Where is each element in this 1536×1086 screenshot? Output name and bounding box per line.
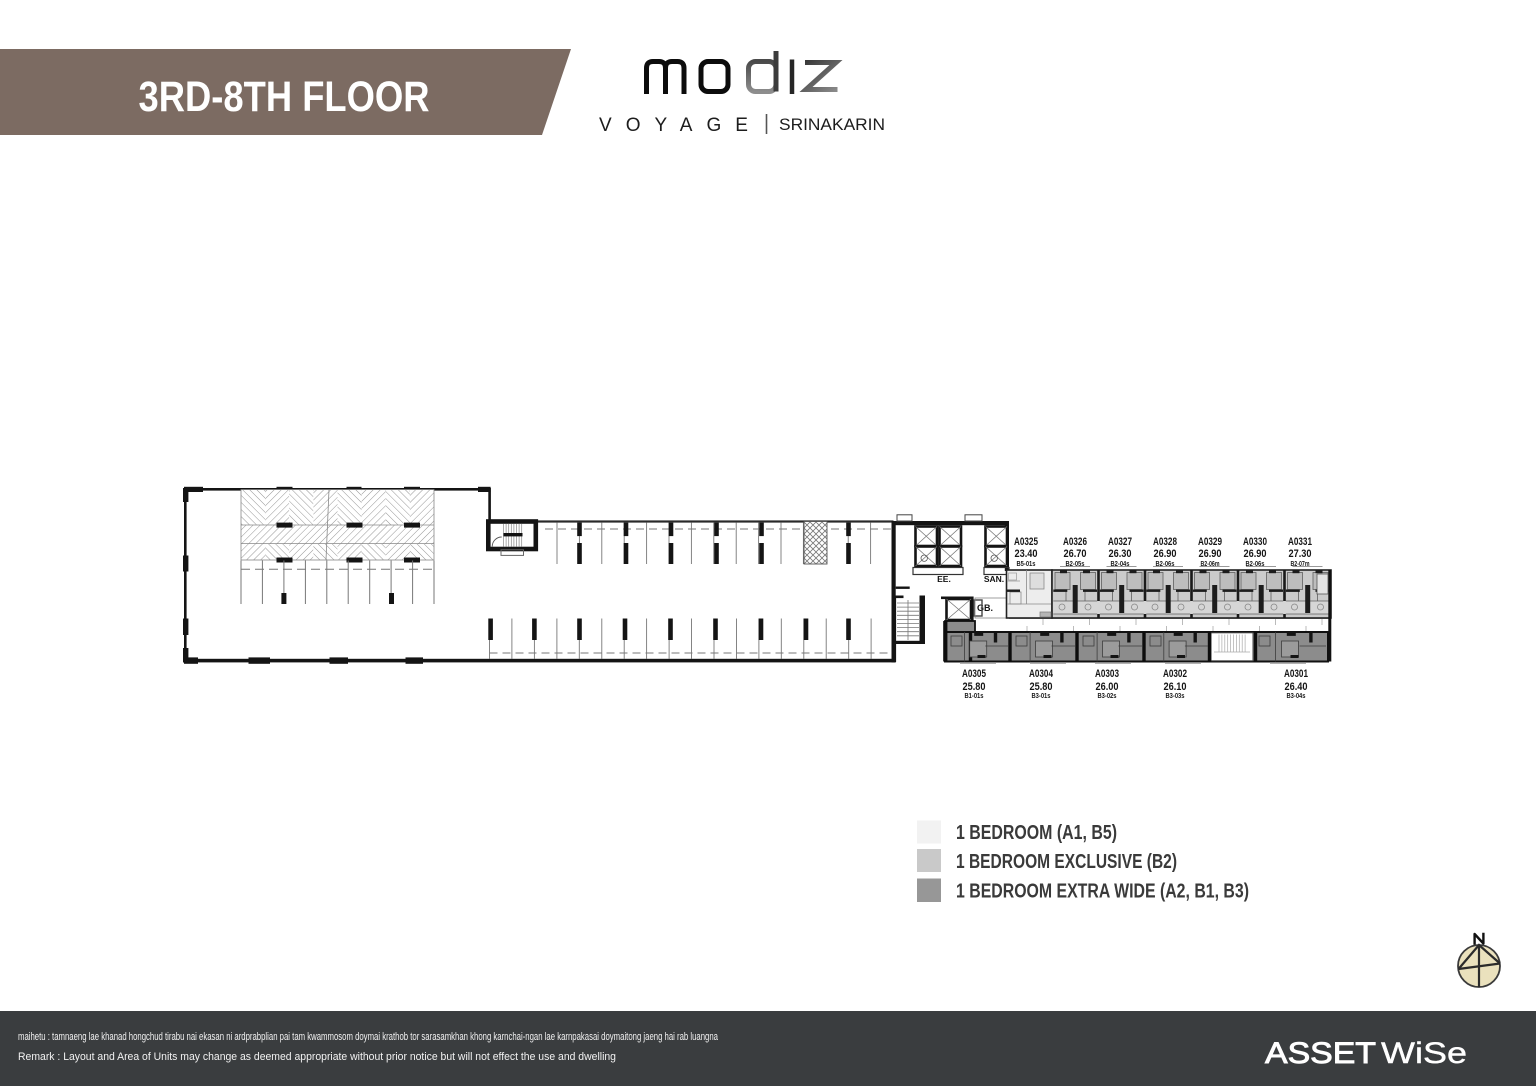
svg-text:SAN.: SAN. xyxy=(984,574,1004,584)
svg-text:A0301: A0301 xyxy=(1284,668,1308,680)
svg-text:B2-05s: B2-05s xyxy=(1066,561,1085,568)
svg-text:A0328: A0328 xyxy=(1153,536,1177,548)
svg-text:B3-02s: B3-02s xyxy=(1098,693,1117,700)
svg-text:1 BEDROOM (A1, B5): 1 BEDROOM (A1, B5) xyxy=(956,821,1117,844)
svg-text:B3-03s: B3-03s xyxy=(1166,693,1185,700)
svg-text:26.10: 26.10 xyxy=(1164,681,1187,693)
svg-text:A0326: A0326 xyxy=(1063,536,1087,548)
svg-text:VOYAGE: VOYAGE xyxy=(599,115,762,136)
svg-text:26.90: 26.90 xyxy=(1244,548,1267,560)
svg-text:A0329: A0329 xyxy=(1198,536,1222,548)
svg-text:26.40: 26.40 xyxy=(1285,681,1308,693)
svg-text:A0302: A0302 xyxy=(1163,668,1187,680)
svg-text:ASSET: ASSET xyxy=(1265,1037,1376,1070)
svg-text:25.80: 25.80 xyxy=(963,681,986,693)
svg-text:B5-01s: B5-01s xyxy=(1017,561,1036,568)
svg-text:A0330: A0330 xyxy=(1243,536,1267,548)
svg-text:A0331: A0331 xyxy=(1288,536,1312,548)
svg-text:23.40: 23.40 xyxy=(1015,548,1038,560)
svg-text:A0305: A0305 xyxy=(962,668,986,680)
svg-text:SRINAKARIN: SRINAKARIN xyxy=(779,116,885,134)
svg-text:26.70: 26.70 xyxy=(1064,548,1087,560)
svg-text:26.00: 26.00 xyxy=(1096,681,1119,693)
svg-text:B2-07m: B2-07m xyxy=(1291,561,1310,568)
svg-text:B2-06s: B2-06s xyxy=(1246,561,1265,568)
svg-text:B2-06m: B2-06m xyxy=(1201,561,1220,568)
svg-text:26.90: 26.90 xyxy=(1199,548,1222,560)
svg-text:EE.: EE. xyxy=(937,574,951,584)
svg-text:maihetu : tamnaeng lae khanad: maihetu : tamnaeng lae khanad hongchud t… xyxy=(18,1031,719,1043)
svg-text:A0304: A0304 xyxy=(1029,668,1054,680)
svg-text:Remark : Layout and Area of Un: Remark : Layout and Area of Units may ch… xyxy=(18,1051,616,1063)
svg-text:B3-04s: B3-04s xyxy=(1287,693,1306,700)
svg-text:GB.: GB. xyxy=(977,603,993,613)
svg-text:26.90: 26.90 xyxy=(1154,548,1177,560)
svg-text:WiSe: WiSe xyxy=(1381,1037,1467,1070)
svg-text:A0325: A0325 xyxy=(1014,536,1038,548)
svg-text:1 BEDROOM EXTRA WIDE (A2, B1,: 1 BEDROOM EXTRA WIDE (A2, B1, B3) xyxy=(956,880,1249,903)
svg-text:B1-01s: B1-01s xyxy=(965,693,984,700)
svg-text:A0303: A0303 xyxy=(1095,668,1119,680)
svg-text:26.30: 26.30 xyxy=(1109,548,1132,560)
svg-text:B2-06s: B2-06s xyxy=(1156,561,1175,568)
svg-text:1 BEDROOM EXCLUSIVE (B2): 1 BEDROOM EXCLUSIVE (B2) xyxy=(956,850,1177,873)
svg-text:27.30: 27.30 xyxy=(1289,548,1312,560)
svg-text:A0327: A0327 xyxy=(1108,536,1132,548)
svg-text:B3-01s: B3-01s xyxy=(1032,693,1051,700)
svg-text:3RD-8TH FLOOR: 3RD-8TH FLOOR xyxy=(139,73,430,121)
svg-text:B2-04s: B2-04s xyxy=(1111,561,1130,568)
svg-text:25.80: 25.80 xyxy=(1030,681,1053,693)
